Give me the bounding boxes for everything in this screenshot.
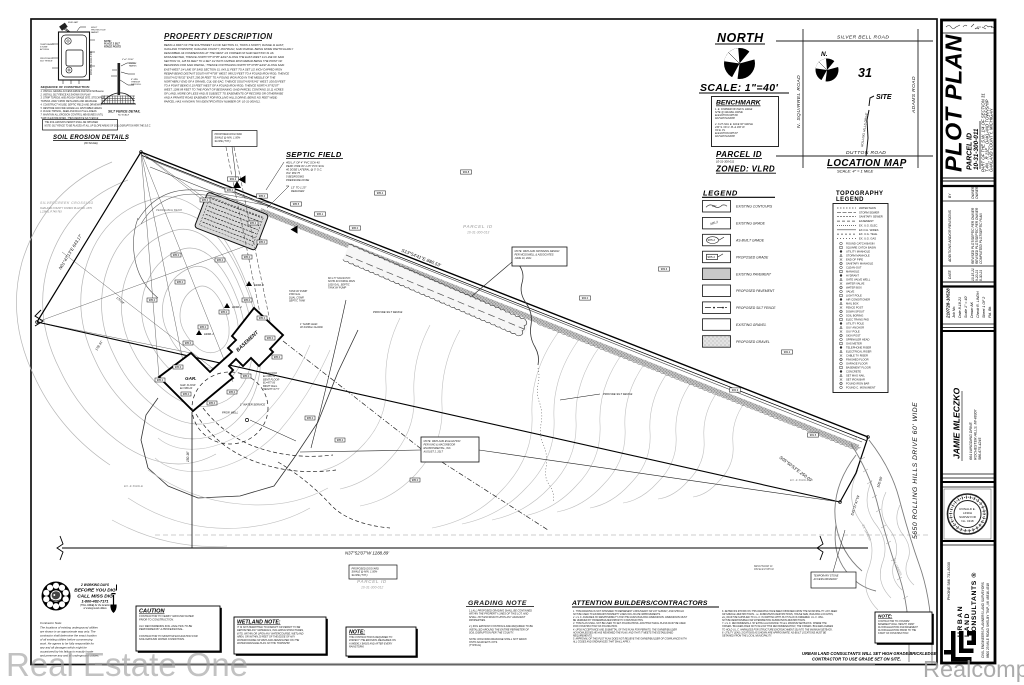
svg-text:PROPOSED PAVEMENT: PROPOSED PAVEMENT: [736, 289, 775, 293]
svg-text:STORM MANHOLE: STORM MANHOLE: [846, 254, 870, 258]
svg-text:(TOLL FREE) for the locati: (TOLL FREE) for the location: [80, 604, 110, 607]
svg-text:ATTENTION BUILDERS/CONTRACTOR: ATTENTION BUILDERS/CONTRACTORS: [571, 600, 708, 607]
svg-text:CLEAN-OUT: CLEAN-OUT: [846, 266, 862, 270]
svg-text:985.0: 985.0: [267, 336, 274, 340]
svg-text:31: 31: [858, 66, 872, 80]
svg-text:986.0: 986.0: [352, 226, 359, 230]
svg-text:JUNE 10, 2021: JUNE 10, 2021: [515, 257, 533, 260]
svg-text:L.23841, P.740-763: L.23841, P.740-763: [40, 211, 62, 214]
svg-text:INV. 983.75: INV. 983.75: [286, 171, 300, 175]
svg-text:WATER DRAINAGE PLAN ON THE TOW: WATER DRAINAGE PLAN ON THE TOWNSHIP.: [237, 642, 290, 645]
svg-text:DATE: DATE: [948, 269, 952, 279]
svg-text:MUD MAT: MUD MAT: [68, 21, 79, 24]
svg-text:CAUTION: CAUTION: [139, 609, 165, 615]
svg-text:CONTRACTOR TO CONFIRM: CONTRACTOR TO CONFIRM: [878, 620, 909, 623]
svg-text:SANITARY MANHOLE: SANITARY MANHOLE: [846, 262, 873, 266]
svg-text:ELECTRICAL RISER: ELECTRICAL RISER: [846, 350, 871, 354]
svg-text:PROPERTIES.: PROPERTIES.: [469, 619, 486, 622]
svg-text:NOTE:: NOTE:: [878, 614, 893, 619]
svg-text:SANITARY SEWER: SANITARY SEWER: [859, 215, 883, 219]
svg-text:EXISTING PAVEMENT: EXISTING PAVEMENT: [736, 272, 772, 276]
svg-text:NOT BE RESPONSIBLE FOR INT: NOT BE RESPONSIBLE FOR INTERPRETING SUBD…: [722, 620, 806, 622]
svg-text:1" WATER SERVICE: 1" WATER SERVICE: [240, 403, 265, 407]
svg-text:STORM SEWER: STORM SEWER: [859, 210, 879, 214]
svg-text:40 DOSE LATERAL @ 5' O.C.: 40 DOSE LATERAL @ 5' O.C.: [286, 168, 323, 172]
svg-text:HDWL 2: HDWL 2: [232, 305, 242, 309]
svg-text:MAIL BOX: MAIL BOX: [846, 302, 859, 306]
svg-text:FINISHED FLOOR: FINISHED FLOOR: [846, 358, 869, 362]
svg-text:SOIL BORING: SOIL BORING: [846, 314, 863, 318]
svg-text:985.0: 985.0: [244, 298, 251, 302]
svg-text:GUY POLE: GUY POLE: [846, 330, 860, 334]
svg-text:NOTE: SILT FENCE TO BE PLACED: NOTE: SILT FENCE TO BE PLACED AT ALL UP …: [45, 125, 152, 128]
svg-text:984.0: 984.0: [582, 296, 589, 300]
svg-text:SEPTIC TANK: SEPTIC TANK: [289, 300, 306, 303]
svg-text:Scale 1" = 40': Scale 1" = 40': [964, 296, 968, 318]
svg-text:985.0: 985.0: [177, 280, 184, 284]
svg-text:985.0: 985.0: [259, 240, 266, 244]
svg-text:NOT BE USED TO ESTABLISH: NOT BE USED TO ESTABLISH PROPERTY LINES …: [573, 613, 661, 616]
svg-text:985.0: 985.0: [250, 221, 257, 225]
svg-text:OAKLAND COUNTY, MICHIGAN: OAKLAND COUNTY, MICHIGAN: [989, 108, 994, 172]
svg-text:SET IRON BAR: SET IRON BAR: [846, 378, 865, 382]
svg-text:SILT FENCE DETAIL: SILT FENCE DETAIL: [108, 110, 140, 114]
svg-text:LIGHT POLE: LIGHT POLE: [846, 294, 862, 298]
svg-text:1. INSTALL GRAVEL ACCESS DRIV: 1. INSTALL GRAVEL ACCESS DRIVE AND MUD M…: [41, 90, 98, 93]
svg-text:NO SCALE: NO SCALE: [118, 114, 130, 117]
svg-text:BE VERIFIED BY OWNER/BUILDE: BE VERIFIED BY OWNER/BUILDER PRIOR TO CO…: [573, 620, 644, 622]
svg-text:586-675-4245: 586-675-4245: [978, 438, 982, 460]
svg-text:FOUND C. MONUMENT: FOUND C. MONUMENT: [846, 386, 876, 390]
svg-text:OR SPECIAL RESTRICTIONS -: OR SPECIAL RESTRICTIONS - i.e. SUBDIVISI…: [722, 613, 834, 616]
svg-text:GAS METER: GAS METER: [846, 342, 862, 346]
svg-text:5 BEDROOMS: 5 BEDROOMS: [286, 175, 304, 179]
svg-text:SPRINKLER HEAD: SPRINKLER HEAD: [846, 338, 870, 342]
svg-text:MANHOLE: MANHOLE: [846, 270, 859, 274]
svg-text:985.0: 985.0: [259, 316, 266, 320]
svg-text:FABRIC: FABRIC: [129, 64, 137, 67]
svg-text:HDWL 1: HDWL 1: [204, 332, 214, 336]
svg-text:985.0: 985.0: [202, 198, 209, 202]
svg-text:EX. U.G. TELE.: EX. U.G. TELE.: [859, 232, 878, 236]
svg-text:985.0: 985.0: [259, 194, 266, 198]
svg-text:Realcomp: Realcomp: [923, 656, 1024, 682]
svg-text:DATUM=NAVD88: DATUM=NAVD88: [715, 135, 735, 138]
svg-text:OF LAND, MORE OR LESS AND IS S: OF LAND, MORE OR LESS AND IS SUBJECT TO …: [164, 92, 283, 96]
svg-text:EX. U.G. ELEC.: EX. U.G. ELEC.: [859, 223, 878, 227]
svg-text:BACKFILL: BACKFILL: [131, 83, 142, 86]
svg-text:WATER BOX: WATER BOX: [846, 286, 862, 290]
svg-text:REQUIREMENTS.: REQUIREMENTS.: [573, 635, 593, 637]
svg-text:150.16': 150.16': [186, 451, 190, 462]
svg-text:FENCE POSTS: FENCE POSTS: [104, 45, 121, 48]
svg-text:985.0: 985.0: [274, 355, 281, 359]
svg-text:(TYPICAL): (TYPICAL): [469, 644, 481, 647]
svg-text:5. RESTORE AND FINE GRADE ALL: 5. RESTORE AND FINE GRADE ALL DISTURBED …: [41, 107, 103, 110]
svg-text:3. STRIP TOPSOIL AND ROUGH GR: 3. STRIP TOPSOIL AND ROUGH GRADE SITE, S…: [41, 97, 105, 100]
svg-text:EL=986.20: EL=986.20: [180, 387, 193, 390]
svg-text:BEFORE YOU DIG: BEFORE YOU DIG: [74, 588, 116, 594]
svg-text:FLOOR ELEVATION AND BASEMENT: FLOOR ELEVATION AND BASEMENT: [878, 626, 918, 629]
svg-text:EXISTING GRADE: EXISTING GRADE: [736, 222, 766, 226]
svg-text:AIR CONDITIONER: AIR CONDITIONER: [846, 298, 870, 302]
svg-text:FLOOR ELEVATION PRIOR TO THE: FLOOR ELEVATION PRIOR TO THE: [878, 629, 917, 632]
svg-text:7. MAINTAIN ALL EROSION CONTR: 7. MAINTAIN ALL EROSION CONTROL MEASURES…: [41, 114, 104, 117]
svg-text:2"x2" POST: 2"x2" POST: [121, 59, 134, 61]
svg-text:TOPSOIL AWAY FROM WETLANDS AND: TOPSOIL AWAY FROM WETLANDS AND DRAINAGE: [41, 100, 98, 103]
svg-text:985.0: 985.0: [221, 310, 228, 314]
svg-text:985.0: 985.0: [244, 255, 251, 259]
svg-text:5. APPROVAL OF THIS PLOT: 5. APPROVAL OF THIS PLOT PLAN DOES NOT R…: [573, 638, 687, 641]
svg-text:FOUND IRON BAR: FOUND IRON BAR: [846, 382, 869, 386]
svg-text:FOR CONSTRUCTION OF FOUNDAT: FOR CONSTRUCTION OF FOUNDATION.: [573, 625, 618, 628]
svg-text:RAINSTORM.: RAINSTORM.: [349, 646, 365, 649]
svg-text:REDUCER: REDUCER: [291, 189, 304, 193]
svg-text:FABRIC: FABRIC: [91, 31, 99, 34]
svg-text:BASEMENT WALL HEIGHT, FIRST: BASEMENT WALL HEIGHT, FIRST: [878, 623, 915, 626]
svg-text:985.0: 985.0: [175, 365, 182, 369]
svg-text:400 L.F. OF 4" PVC SCH 40: 400 L.F. OF 4" PVC SCH 40: [286, 161, 320, 165]
svg-text:HDWL 3: HDWL 3: [254, 283, 264, 287]
svg-text:COMPLETED PLOT/SEPTIC PLAN: COMPLETED PLOT/SEPTIC PLAN: [979, 213, 983, 264]
svg-text:PARCEL ID: PARCEL ID: [716, 150, 762, 159]
svg-text:985.0: 985.0: [149, 298, 156, 302]
svg-text:TANK W/ PUMP: TANK W/ PUMP: [328, 287, 346, 290]
svg-text:LEGEND: LEGEND: [703, 189, 738, 198]
svg-text:UTILITY POLE: UTILITY POLE: [846, 322, 864, 326]
svg-text:WETLAND NOTE:: WETLAND NOTE:: [237, 620, 281, 626]
svg-text:Date 8-18-21: Date 8-18-21: [958, 297, 962, 318]
svg-text:CONSULTANTS ®: CONSULTANTS ®: [970, 572, 978, 637]
svg-text:SITE: SITE: [876, 94, 892, 101]
svg-text:Drawn AK: Drawn AK: [970, 301, 974, 318]
svg-text:SECTION 31, 128.84 FEET TO A S: SECTION 31, 128.84 FEET TO A SET 1/2 INC…: [164, 59, 282, 63]
svg-text:6. SETBACKS SHOWN ON THIS DR: 6. SETBACKS SHOWN ON THIS DRAWING HAVE B…: [722, 610, 837, 613]
svg-text:Fld. Bk.: Fld. Bk.: [988, 306, 992, 318]
svg-text:NOTE:: NOTE:: [349, 630, 365, 636]
svg-text:985.0: 985.0: [307, 416, 314, 420]
svg-text:GRADING NOTE: GRADING NOTE: [468, 600, 527, 607]
svg-text:PROVIDE SILT FENCE: PROVIDE SILT FENCE: [603, 392, 632, 396]
svg-text:8800 23 MILE ROAD SHELB: 8800 23 MILE ROAD SHELBY TWP., MI 48316-…: [986, 583, 990, 658]
svg-text:2 WORKING DAYS: 2 WORKING DAYS: [80, 583, 110, 587]
svg-text:Sheet 1 OF 2: Sheet 1 OF 2: [982, 297, 986, 318]
svg-text:BEING A PART OF THE SOUTHWEST: BEING A PART OF THE SOUTHWEST 1/4 OF SEC…: [164, 43, 284, 47]
svg-text:SEPTIC FIELD: SEPTIC FIELD: [286, 150, 342, 159]
svg-text:ALL CODES AND ORDINANCES T: ALL CODES AND ORDINANCES THAT SHALL APPL…: [572, 641, 631, 644]
svg-text:982.9: 982.9: [732, 388, 739, 392]
svg-text:3. THIS PLAN SHALL NOT B: 3. THIS PLAN SHALL NOT BE USED TO SET FO…: [573, 622, 686, 625]
svg-text:PERFORMED BY A PROFESSIONAL: PERFORMED BY A PROFESSIONAL.: [139, 627, 184, 631]
svg-text:SQUARE CATCH BASIN: SQUARE CATCH BASIN: [846, 246, 876, 250]
svg-text:PROP. WELL: PROP. WELL: [222, 411, 239, 415]
svg-text:AND A PRIVATE ROAD EASEMENT FO: AND A PRIVATE ROAD EASEMENT FOR ROLLING …: [163, 96, 278, 100]
svg-text:TO A POINT BEING 0.15 FEET WES: TO A POINT BEING 0.15 FEET WEST OF A FOU…: [164, 84, 280, 88]
svg-text:WATER MAIN: WATER MAIN: [859, 206, 876, 210]
svg-text:NORTHERLY END OF A GRAVEL CUL-: NORTHERLY END OF A GRAVEL CUL-DE-SAC; TH…: [164, 79, 286, 83]
svg-text:AUGUST 2, 2017: AUGUST 2, 2017: [423, 451, 444, 454]
svg-text:WEST, 1288.89 FEET TO THE POIN: WEST, 1288.89 FEET TO THE POINT OF BEGIN…: [164, 88, 284, 92]
svg-text:ROLLING HILLS DR.: ROLLING HILLS DR.: [89, 50, 93, 75]
svg-text:1. THIS DRAWING IS NOT INTEN: 1. THIS DRAWING IS NOT INTENDED TO REPRE…: [573, 610, 684, 613]
svg-text:ACCESS DRIVEWAY: ACCESS DRIVEWAY: [813, 578, 838, 581]
svg-text:PRIOR TO CONSTRUCTION.: PRIOR TO CONSTRUCTION.: [139, 617, 174, 621]
svg-text:PERF. PIPE W/ 1.25" PVC SCH: PERF. PIPE W/ 1.25" PVC SCH: [286, 164, 324, 168]
svg-text:985.0: 985.0: [243, 374, 250, 378]
svg-text:CABLE TV RISER: CABLE TV RISER: [846, 354, 868, 358]
svg-text:PRESSURE DOSE: PRESSURE DOSE: [286, 178, 309, 182]
svg-text:OWNER: OWNER: [975, 186, 979, 199]
svg-text:TO HOLD U.L.C. HARMLESS FO: TO HOLD U.L.C. HARMLESS FOR STRUCTURE EN…: [722, 628, 833, 631]
svg-text:OAKLAND TOWNSHIP, OAKLAND COUN: OAKLAND TOWNSHIP, OAKLAND COUNTY, MICHIG…: [164, 47, 293, 51]
svg-text:1-800-482-7171: 1-800-482-7171: [81, 600, 108, 604]
svg-text:No. 4318: No. 4318: [961, 519, 974, 523]
svg-text:10-31-300-012: 10-31-300-012: [361, 586, 383, 590]
svg-text:981.5: 981.5: [810, 433, 817, 437]
svg-text:GAR.: GAR.: [185, 376, 196, 381]
svg-text:CONTRACTOR TO USE GRADE SE: CONTRACTOR TO USE GRADE SET ON SITE.: [812, 657, 901, 662]
svg-text:MONUMENTED, THENCE NORTH 87°47: MONUMENTED, THENCE NORTH 87°47'05" EAST …: [164, 55, 284, 59]
svg-text:ACCESS: ACCESS: [39, 48, 50, 51]
svg-text:RIM ELEV=985.02: RIM ELEV=985.02: [754, 568, 775, 571]
svg-text:SOIL/GROUND WATER CONDITIONS: SOIL/GROUND WATER CONDITIONS.: [139, 637, 185, 641]
svg-text:HEIGHT=±7.5': HEIGHT=±7.5': [263, 388, 280, 391]
svg-text:ZONED: VLRD: ZONED: VLRD: [715, 165, 775, 174]
svg-text:985.0: 985.0: [412, 478, 419, 482]
svg-text:7. U.L.C. RECOMMENDS A .5: 7. U.L.C. RECOMMENDS A .50' EXTRA ALLOWA…: [722, 622, 827, 625]
svg-text:PROPERTY DESCRIPTION: PROPERTY DESCRIPTION: [164, 32, 273, 41]
svg-text:982: 982: [712, 204, 717, 208]
svg-text:SLOPE (TYP.): SLOPE (TYP.): [352, 574, 368, 577]
svg-text:4. CONSTRUCT HOUSE, SEPTIC FI: 4. CONSTRUCT HOUSE, SEPTIC FIELD AND DRI…: [41, 103, 103, 106]
svg-text:START OF CONSTRUCTION.: START OF CONSTRUCTION.: [878, 632, 909, 635]
svg-text:PLOT PLAN: PLOT PLAN: [941, 34, 967, 172]
svg-text:Real Estate One: Real Estate One: [6, 646, 248, 683]
svg-text:SLOPE (TYP.): SLOPE (TYP.): [215, 140, 231, 143]
svg-text:985.2: 985.2: [708, 255, 716, 259]
svg-text:PROPOSED GRAVEL: PROPOSED GRAVEL: [736, 340, 770, 344]
svg-text:W/ ANIMAL GUARD: W/ ANIMAL GUARD: [300, 326, 323, 329]
svg-text:DESCRIBED AS COMMENCING AT THE: DESCRIBED AS COMMENCING AT THE WEST 1/4 …: [164, 51, 274, 55]
svg-text:SCALE: 1"=40': SCALE: 1"=40': [700, 82, 778, 94]
svg-text:985.2: 985.2: [708, 238, 716, 242]
svg-text:EX.O.H. WIRES: EX.O.H. WIRES: [859, 228, 879, 232]
svg-text:THE SOIL EROSION PERMIT SHALL: THE SOIL EROSION PERMIT SHALL BE OBTAINE…: [45, 121, 99, 124]
svg-text:DOWN SPOUT: DOWN SPOUT: [846, 310, 865, 314]
svg-text:EAST-WEST 1/4 LINE OF SAID SEC: EAST-WEST 1/4 LINE OF SAID SECTION 31, 6…: [164, 67, 282, 71]
svg-text:REBAR BEING DISTANT SOUTH 87°4: REBAR BEING DISTANT SOUTH 87°47'05" WEST…: [164, 71, 289, 75]
svg-text:N37°52'07"W 1288.89': N37°52'07"W 1288.89': [345, 551, 389, 556]
svg-text:Job No.: Job No.: [952, 306, 956, 319]
svg-text:PROPOSED SILT FENCE: PROPOSED SILT FENCE: [736, 306, 776, 310]
svg-text:985.0: 985.0: [185, 341, 192, 345]
svg-text:10-31-300-011: 10-31-300-011: [716, 160, 735, 164]
svg-text:PARCEL ID: PARCEL ID: [357, 579, 387, 584]
svg-text:GRADE: GRADE: [96, 90, 104, 93]
svg-text:985.0: 985.0: [173, 253, 180, 257]
svg-text:GARAGE FLOOR: GARAGE FLOOR: [846, 362, 868, 366]
svg-text:ELEC TRANS PAD: ELEC TRANS PAD: [846, 318, 869, 322]
svg-text:PROPOSED GRADE: PROPOSED GRADE: [736, 255, 769, 259]
svg-text:ADDITIONS AND/OR REVISIONS: ADDITIONS AND/OR REVISIONS: [948, 209, 952, 263]
svg-text:10-31-300-011: 10-31-300-011: [973, 128, 980, 170]
svg-text:985.5: 985.5: [293, 202, 300, 206]
svg-text:GATE VALVE WELL: GATE VALVE WELL: [846, 278, 871, 282]
svg-text:SOUTH 02°50'32" EAST, 250.09 F: SOUTH 02°50'32" EAST, 250.09 FEET TO A F…: [164, 75, 275, 79]
svg-text:EXISTING GRAVEL: EXISTING GRAVEL: [736, 323, 766, 327]
svg-text:664 WINGDING DRIVE: 664 WINGDING DRIVE: [969, 422, 973, 460]
svg-text:SET MAG NAIL: SET MAG NAIL: [846, 374, 865, 378]
svg-text:985.0: 985.0: [209, 401, 216, 405]
svg-text:985.0: 985.0: [200, 325, 207, 329]
svg-text:SOIL DISRUPTION PER THE CO: SOIL DISRUPTION PER THE COUNTY.: [469, 632, 514, 635]
svg-text:984.8: 984.8: [463, 170, 470, 174]
svg-text:FENCE POST: FENCE POST: [846, 306, 864, 310]
svg-text:TEMPORARY STONE: TEMPORARY STONE: [814, 575, 839, 578]
svg-text:EASEMENT: EASEMENT: [859, 219, 874, 223]
svg-text:JAMIE MLECZKO: JAMIE MLECZKO: [952, 388, 962, 459]
svg-text:985.0: 985.0: [337, 438, 344, 442]
svg-text:2. U.L.C. ASSUMES NO RESP: 2. U.L.C. ASSUMES NO RESPONSIBILITY FOR …: [572, 616, 688, 619]
svg-text:LEGEND: LEGEND: [836, 197, 864, 203]
svg-text:PROPOSED DOGYARD: PROPOSED DOGYARD: [215, 133, 243, 136]
svg-text:URBAN LAND CONSULTANTS WILL: URBAN LAND CONSULTANTS WILL SET HIGH GRA…: [802, 651, 937, 656]
svg-text:etc.) MUST BE SUPPLIED TO: etc.) MUST BE SUPPLIED TO U.L.C. IN WRIT…: [722, 616, 824, 619]
svg-text:TELEPHONE RISER: TELEPHONE RISER: [846, 346, 871, 350]
svg-text:N. SQUIRREL ROAD: N. SQUIRREL ROAD: [796, 75, 802, 128]
svg-text:ADAMS ROAD: ADAMS ROAD: [911, 76, 917, 114]
svg-text:8-30-21: 8-30-21: [979, 270, 983, 281]
svg-text:SILT FENCE: SILT FENCE: [40, 60, 53, 62]
svg-text:5650 ROLLING HILLS DRIVE 6: 5650 ROLLING HILLS DRIVE 60' WIDE: [912, 402, 919, 539]
svg-text:AS-BUILT GRADE: AS-BUILT GRADE: [735, 239, 765, 243]
svg-text:PARCEL ID: PARCEL ID: [463, 224, 493, 229]
svg-text:10-31-300-013: 10-31-300-013: [467, 231, 489, 235]
svg-text:N.: N.: [821, 51, 828, 58]
svg-text:OWNER / BUILDER DOES NOT: OWNER / BUILDER DOES NOT FOLLOW THIS REC…: [722, 625, 834, 628]
svg-text:985.4: 985.4: [377, 191, 384, 195]
svg-text:SWALE @ MIN. 1.00%: SWALE @ MIN. 1.00%: [215, 137, 241, 140]
svg-text:Contractor Note:: Contractor Note:: [40, 621, 62, 625]
svg-text:EXISTING CONTOURS: EXISTING CONTOURS: [736, 205, 773, 209]
svg-text:EX. U.G. GAS: EX. U.G. GAS: [859, 236, 876, 240]
svg-text:PHONE 586 731-8030: PHONE 586 731-8030: [947, 562, 951, 600]
svg-text:HYDRANT: HYDRANT: [846, 274, 859, 278]
svg-text:UTILITY MANHOLE: UTILITY MANHOLE: [846, 250, 870, 254]
svg-text:983.6: 983.6: [661, 267, 668, 271]
svg-text:WATER VALVE: WATER VALVE: [846, 282, 865, 286]
svg-text:8. UTILITY LEAD LOCATIONS: 8. UTILITY LEAD LOCATIONS AS SHOWN ARE A…: [722, 631, 827, 634]
svg-text:CIVIL ENGINEERS PLANNERS: CIVIL ENGINEERS PLANNERS LAND SURVEYORS: [981, 582, 985, 658]
svg-text:GUY ANCHOR: GUY ANCHOR: [846, 326, 864, 330]
svg-text:BASEMENT FLOOR: BASEMENT FLOOR: [846, 366, 871, 370]
svg-text:2. INSTALL SILT FENCE AS SHOW: 2. INSTALL SILT FENCE AS SHOWN ON PLAN: [40, 93, 91, 96]
svg-text:ROUND CATCH BASIN: ROUND CATCH BASIN: [846, 242, 875, 246]
svg-text:PARCEL HAS A KNOWN TAX IDENTIF: PARCEL HAS A KNOWN TAX IDENTIFICATION NU…: [164, 100, 261, 104]
svg-text:SILVERCREEK CROSSING: SILVERCREEK CROSSING: [40, 201, 94, 205]
svg-text:210728-10528: 210728-10528: [946, 288, 951, 319]
svg-text:END OF PIPE: END OF PIPE: [846, 258, 863, 262]
svg-text:ACKNOWLEDGES HE HAS REVIEWE: ACKNOWLEDGES HE HAS REVIEWED THE PLAN, A…: [572, 631, 674, 634]
svg-text:EX. E SWALE: EX. E SWALE: [124, 484, 144, 488]
svg-text:BEGINNING FOR SAID PARCEL; THE: BEGINNING FOR SAID PARCEL; THENCE CONTIN…: [164, 63, 284, 67]
svg-text:EX. E SWALE: EX. E SWALE: [790, 478, 810, 482]
svg-text:CONCRETE: CONCRETE: [846, 370, 861, 374]
svg-text:985.0: 985.0: [157, 378, 164, 382]
svg-text:PERMEABLE BERM: PERMEABLE BERM: [156, 208, 183, 212]
svg-text:4. UPON ACCEPTANCE AND SU: 4. UPON ACCEPTANCE AND SUBMITTAL OF THIS…: [573, 628, 677, 631]
svg-text:BENCHMARK: BENCHMARK: [716, 100, 762, 107]
svg-text:of underground utilities: of underground utilities: [83, 607, 107, 610]
svg-text:985.0: 985.0: [217, 258, 224, 262]
svg-text:OBTAINED FROM THE LOCAL MU: OBTAINED FROM THE LOCAL MUNICIPALITY.: [722, 634, 772, 637]
svg-text:985.0: 985.0: [227, 188, 234, 192]
svg-text:DATUM=NAVD88: DATUM=NAVD88: [715, 117, 735, 120]
svg-text:BY: BY: [948, 193, 952, 198]
svg-text:SILVER BELL ROAD: SILVER BELL ROAD: [837, 35, 889, 41]
svg-text:SCALE: 4" = 1 MILE: SCALE: 4" = 1 MILE: [837, 169, 874, 174]
svg-text:982.2: 982.2: [784, 350, 791, 354]
svg-text:VALVE: VALVE: [846, 290, 854, 294]
svg-text:Check R. LINDH: Check R. LINDH: [976, 291, 980, 318]
svg-text:ROCHESTER HILLS, MI 48307: ROCHESTER HILLS, MI 48307: [974, 408, 978, 460]
svg-text:(NO SCALE): (NO SCALE): [84, 142, 98, 145]
svg-text:986.1: 986.1: [317, 212, 324, 216]
svg-text:NORTH: NORTH: [717, 31, 764, 45]
svg-text:6. PLACE TOPSOIL, SEED AND MU: 6. PLACE TOPSOIL, SEED AND MULCH ALL ARE…: [41, 110, 98, 113]
svg-text:985.0: 985.0: [229, 390, 236, 394]
svg-text:PROVIDE SILT FENCE: PROVIDE SILT FENCE: [373, 310, 402, 314]
svg-text:SIGN POST: SIGN POST: [846, 334, 861, 338]
svg-text:SEQUENCE OF CONSTRUCTION:: SEQUENCE OF CONSTRUCTION:: [41, 85, 90, 89]
svg-text:985.0: 985.0: [183, 392, 190, 396]
